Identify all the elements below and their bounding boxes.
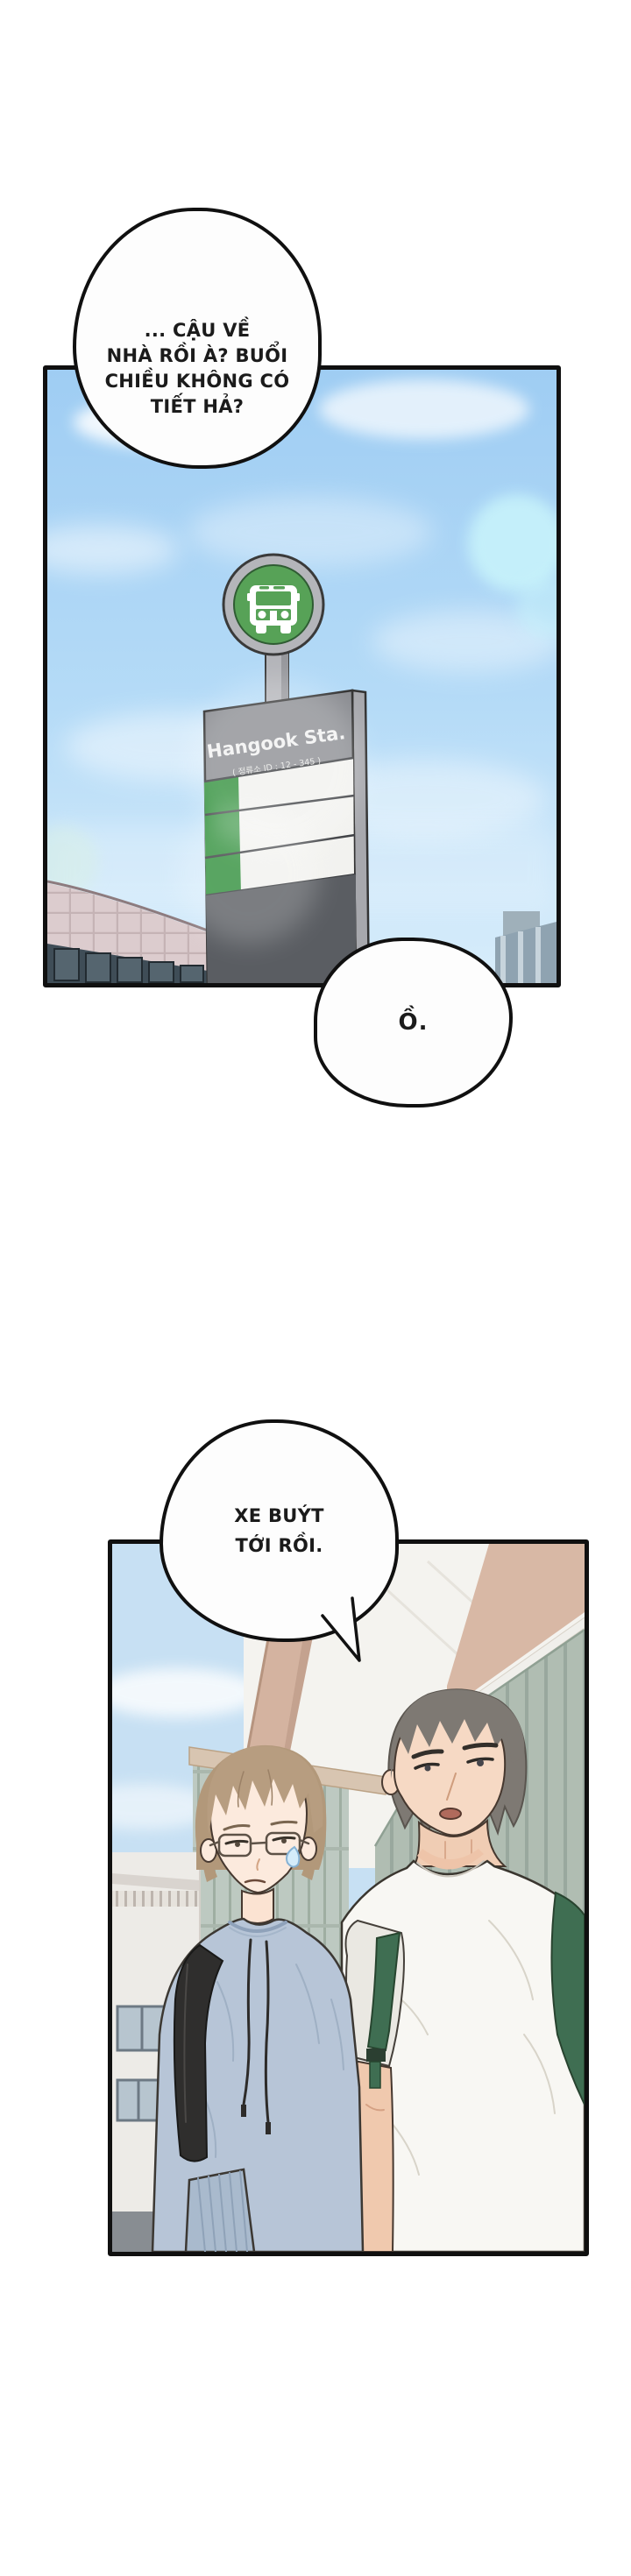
bubble-3-line: XE BUÝT — [234, 1501, 324, 1531]
bubble-1-line: ... CẬU VỀ — [145, 318, 251, 343]
bus-stop-scene: Hangook Sta. ( 정류소 ID : 12 - 345 ) — [47, 370, 557, 983]
bubble-1-line: TIẾT HẢ? — [151, 394, 245, 420]
bus-sign-circle — [223, 555, 323, 655]
bubble-1-line: NHÀ RỒI À? BUỔI — [107, 343, 288, 369]
mouth — [440, 1808, 461, 1819]
bubble-3-line: TỚI RỒI. — [235, 1531, 323, 1560]
bubble-1-line: CHIỀU KHÔNG CÓ — [105, 369, 290, 394]
speech-bubble-3-tail — [305, 1588, 375, 1671]
neck — [242, 1889, 273, 1923]
speech-bubble-2: Ồ. — [314, 938, 513, 1108]
sign-board: Hangook Sta. ( 정류소 ID : 12 - 345 ) — [179, 678, 369, 983]
speech-bubble-1: ... CẬU VỀ NHÀ RỒI À? BUỔI CHIỀU KHÔNG C… — [73, 208, 322, 469]
strap-buckle — [366, 2049, 386, 2062]
panel-bus-stop: Hangook Sta. ( 정류소 ID : 12 - 345 ) — [43, 365, 561, 987]
bubble-2-text: Ồ. — [399, 1009, 429, 1036]
glasses — [219, 1835, 251, 1856]
webtoon-page: ... CẬU VỀ NHÀ RỒI À? BUỔI CHIỀU KHÔNG C… — [0, 0, 631, 2576]
